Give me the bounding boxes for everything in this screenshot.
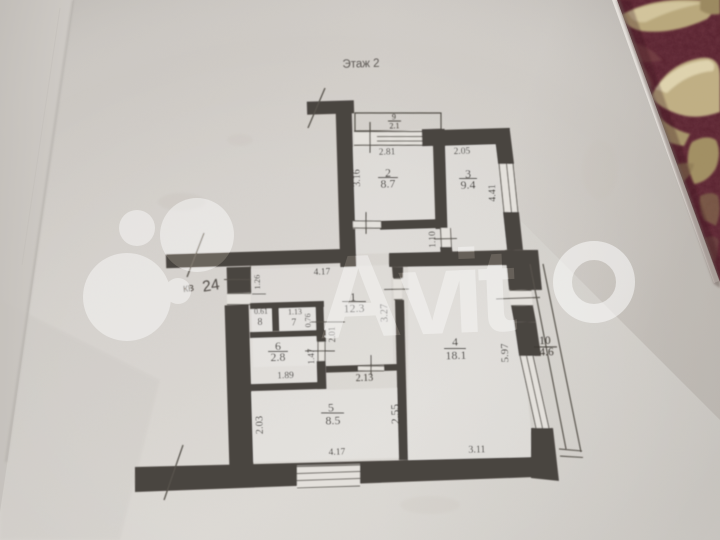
svg-text:1.26: 1.26 — [252, 274, 262, 289]
svg-text:9.4: 9.4 — [460, 177, 475, 191]
svg-text:2.8: 2.8 — [270, 350, 285, 364]
svg-text:1.47: 1.47 — [306, 348, 316, 365]
svg-text:0.76: 0.76 — [303, 313, 312, 327]
svg-text:2.55: 2.55 — [390, 403, 403, 424]
svg-text:2.1: 2.1 — [389, 121, 399, 130]
svg-text:8.5: 8.5 — [325, 413, 340, 427]
svg-text:8: 8 — [257, 317, 262, 328]
svg-text:8.7: 8.7 — [380, 176, 395, 190]
svg-text:1.89: 1.89 — [277, 371, 294, 381]
svg-text:2.81: 2.81 — [379, 147, 396, 157]
svg-text:10: 10 — [539, 335, 551, 347]
svg-text:t: t — [475, 224, 520, 358]
svg-text:24: 24 — [201, 276, 221, 295]
svg-text:4.41: 4.41 — [487, 184, 499, 202]
svg-text:2.03: 2.03 — [254, 416, 266, 435]
svg-text:9: 9 — [392, 112, 396, 121]
svg-text:2.05: 2.05 — [453, 147, 470, 157]
svg-text:A: A — [314, 229, 405, 364]
svg-text:7: 7 — [291, 317, 296, 328]
svg-text:4.17: 4.17 — [329, 447, 346, 457]
svg-text:Этаж 2: Этаж 2 — [342, 58, 379, 71]
svg-text:2.13: 2.13 — [356, 373, 374, 385]
svg-text:4.6: 4.6 — [539, 346, 554, 358]
svg-text:0.61: 0.61 — [254, 307, 268, 316]
svg-text:3.11: 3.11 — [468, 444, 485, 456]
svg-text:3.16: 3.16 — [352, 169, 364, 187]
svg-text:1.13: 1.13 — [288, 307, 302, 316]
